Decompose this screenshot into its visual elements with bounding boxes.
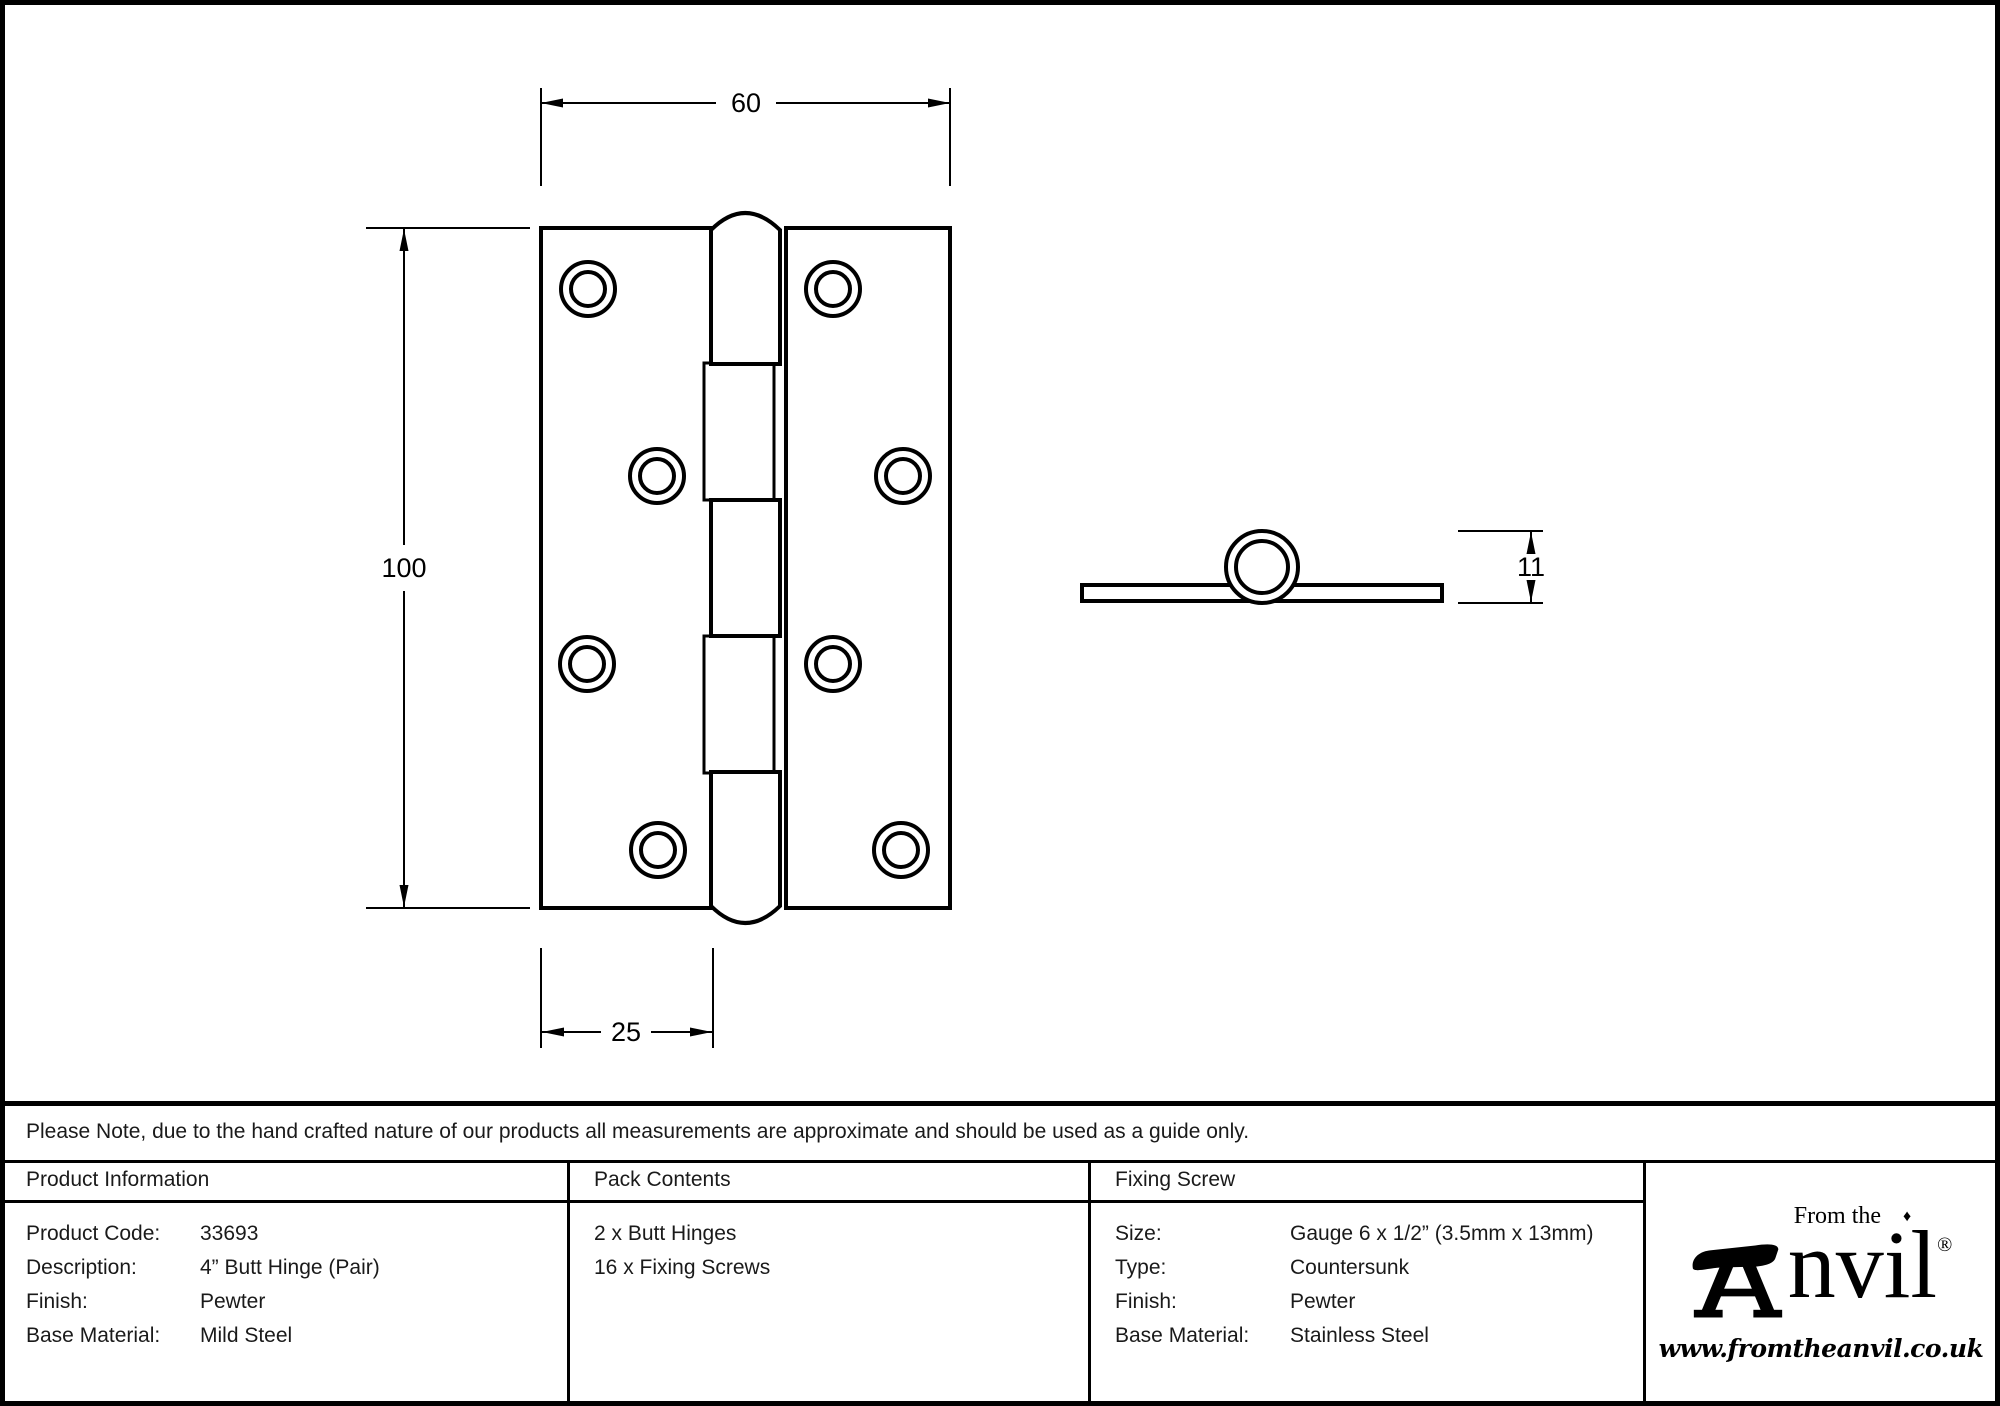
list-item: 16 x Fixing Screws	[594, 1251, 770, 1285]
row-value: Countersunk	[1290, 1256, 1409, 1280]
brand-logo: From the ♦ nvil® www.fromtheanvil.co.uk	[1646, 1163, 1996, 1403]
row-label: Type:	[1115, 1256, 1290, 1280]
logo-row: From the ♦ nvil®	[1690, 1203, 1953, 1326]
brand-name-rest: nvil	[1788, 1211, 1937, 1318]
table-row: Finish: Pewter	[1115, 1285, 1593, 1319]
dim-width-label: 60	[731, 88, 761, 118]
row-label: Finish:	[26, 1290, 200, 1314]
knuckle-segment-2	[704, 363, 774, 500]
row-value: Mild Steel	[200, 1324, 292, 1348]
knuckle-segment-3	[711, 500, 780, 636]
dimension-width: 60	[541, 88, 950, 186]
row-label: Finish:	[1115, 1290, 1290, 1314]
row-label: Size:	[1115, 1222, 1290, 1246]
row-value: Pewter	[200, 1290, 265, 1314]
right-leaf	[786, 228, 950, 908]
note-text: Please Note, due to the hand crafted nat…	[26, 1120, 1249, 1144]
knuckle-segment-5	[711, 772, 780, 923]
spec-sheet: 60 100 25 11	[0, 0, 2000, 1406]
table-row: Type: Countersunk	[1115, 1251, 1593, 1285]
header-fixing-screw: Fixing Screw	[1115, 1168, 1235, 1192]
table-row: Finish: Pewter	[26, 1285, 380, 1319]
hinge-front-view	[541, 213, 950, 923]
header-product-information: Product Information	[26, 1168, 209, 1192]
dimension-leaf-width: 25	[541, 948, 713, 1048]
row-label: Description:	[26, 1256, 200, 1280]
row-value: Gauge 6 x 1/2” (3.5mm x 13mm)	[1290, 1222, 1593, 1246]
website-url: www.fromtheanvil.co.uk	[1659, 1334, 1984, 1363]
dim-thickness-label: 11	[1517, 552, 1545, 582]
pack-contents-body: 2 x Butt Hinges 16 x Fixing Screws	[594, 1217, 770, 1285]
table-row: Size: Gauge 6 x 1/2” (3.5mm x 13mm)	[1115, 1217, 1593, 1251]
knuckle-segment-1	[711, 213, 780, 364]
side-view-knuckle-inner	[1236, 541, 1288, 593]
dim-height-label: 100	[381, 553, 426, 583]
hinge-side-view	[1082, 531, 1442, 603]
row-value: 33693	[200, 1222, 258, 1246]
dimension-height: 100	[366, 228, 530, 908]
row-label: Base Material:	[1115, 1324, 1290, 1348]
header-pack-contents: Pack Contents	[594, 1168, 731, 1192]
table-row: Description: 4” Butt Hinge (Pair)	[26, 1251, 380, 1285]
logo-text-block: From the ♦ nvil®	[1788, 1203, 1953, 1326]
table-row: Base Material: Stainless Steel	[1115, 1319, 1593, 1353]
dimension-thickness: 11	[1458, 531, 1545, 603]
left-leaf	[541, 228, 711, 908]
table-row: Base Material: Mild Steel	[26, 1319, 380, 1353]
product-information-body: Product Code: 33693 Description: 4” Butt…	[26, 1217, 380, 1353]
list-item: 2 x Butt Hinges	[594, 1217, 770, 1251]
knuckle-segment-4	[704, 636, 774, 773]
row-label: Base Material:	[26, 1324, 200, 1348]
row-label: Product Code:	[26, 1222, 200, 1246]
fixing-screw-body: Size: Gauge 6 x 1/2” (3.5mm x 13mm) Type…	[1115, 1217, 1593, 1353]
anvil-icon	[1690, 1240, 1786, 1322]
registered-mark: ®	[1937, 1234, 1952, 1256]
table-row: Product Code: 33693	[26, 1217, 380, 1251]
brand-name: nvil®	[1788, 1230, 1953, 1326]
dim-leaf-width-label: 25	[611, 1017, 641, 1047]
row-value: 4” Butt Hinge (Pair)	[200, 1256, 380, 1280]
row-value: Stainless Steel	[1290, 1324, 1429, 1348]
row-value: Pewter	[1290, 1290, 1355, 1314]
